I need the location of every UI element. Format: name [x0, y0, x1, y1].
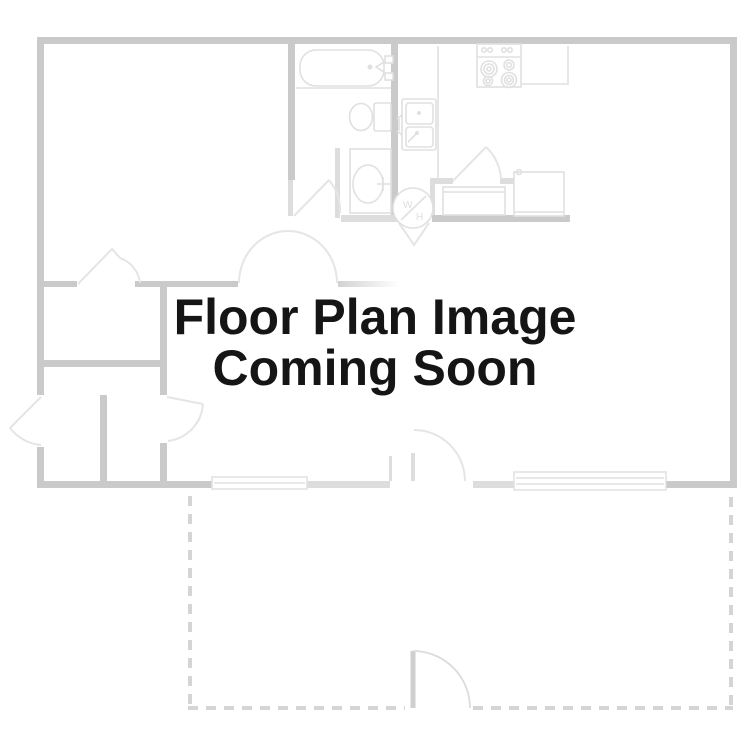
floor-plan-placeholder-image: W H Floor Plan Image Coming Soon — [0, 0, 750, 750]
window-icon — [212, 477, 307, 489]
patio-door-swing-icon — [413, 651, 470, 708]
placeholder-text-line1: Floor Plan Image — [0, 292, 750, 343]
door-swing-icon — [453, 147, 501, 181]
water-heater-label-w: W — [403, 200, 413, 211]
water-heater-label-h: H — [416, 212, 423, 223]
refrigerator-icon — [514, 170, 564, 217]
door-swing-icon — [389, 430, 465, 481]
door-arch-icon — [239, 231, 337, 283]
kitchen: W H — [393, 44, 568, 228]
windows — [212, 472, 666, 490]
door-swing-icon — [10, 397, 41, 445]
interior-walls — [37, 44, 570, 481]
bifold-door-icon — [78, 249, 140, 284]
bathroom — [296, 50, 393, 213]
toilet-icon — [350, 103, 392, 131]
stove-icon — [477, 44, 521, 88]
vanity-sink-icon — [350, 149, 391, 213]
door-swing-icon — [294, 180, 340, 216]
patio-dashed-outline — [188, 496, 733, 708]
placeholder-text-line2: Coming Soon — [0, 343, 750, 394]
bathtub-icon — [300, 50, 393, 86]
water-heater-icon: W H — [393, 188, 433, 228]
counter-cabinet — [443, 187, 505, 215]
placeholder-text: Floor Plan Image Coming Soon — [0, 292, 750, 394]
window-icon — [514, 472, 666, 490]
kitchen-double-sink-icon — [397, 99, 436, 150]
counter-outline — [521, 46, 568, 84]
door-swing-icon — [167, 397, 203, 441]
